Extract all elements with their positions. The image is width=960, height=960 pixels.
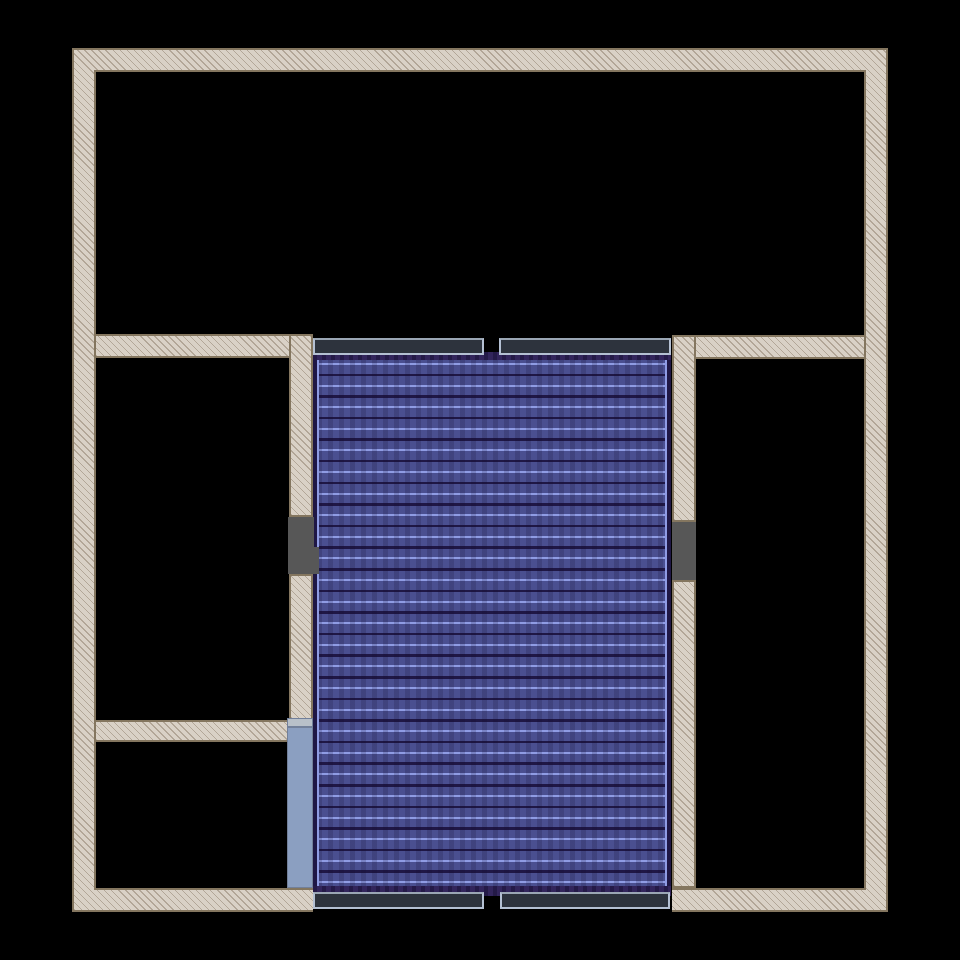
railing-top-left[interactable] <box>313 338 484 355</box>
wall-right-partition-upper[interactable] <box>672 335 696 522</box>
staircase-plank-deck[interactable] <box>313 352 671 896</box>
door-opening-left-notch <box>312 547 319 574</box>
wall-left-room-bottom[interactable] <box>94 720 289 742</box>
wall-left-room-top[interactable] <box>94 334 313 358</box>
window-panel-cap <box>287 718 313 727</box>
wall-right-partition-lower[interactable] <box>672 580 696 888</box>
railing-bottom-right[interactable] <box>500 892 670 909</box>
door-opening-left[interactable] <box>288 517 314 574</box>
railing-bottom-left[interactable] <box>313 892 484 909</box>
wall-left-partition-lower[interactable] <box>289 574 313 720</box>
railing-top-right[interactable] <box>499 338 671 355</box>
wall-right-room-top[interactable] <box>672 335 866 359</box>
window-panel[interactable] <box>287 727 313 888</box>
wall-left-partition-upper[interactable] <box>289 334 313 517</box>
floor-plan-canvas <box>0 0 960 960</box>
door-opening-right[interactable] <box>672 522 696 580</box>
